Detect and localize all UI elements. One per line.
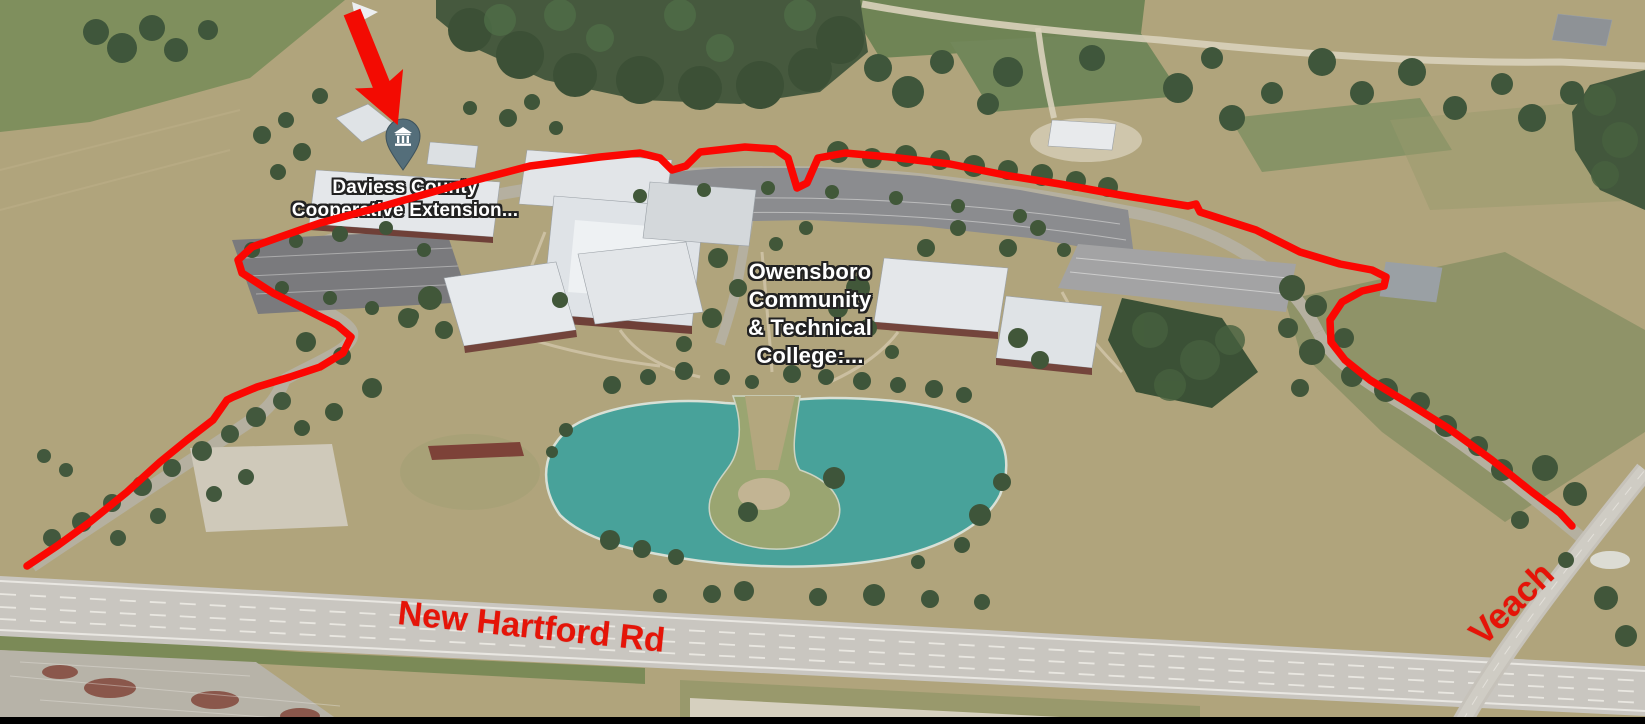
letterbox-bar	[0, 717, 1645, 724]
campus-label-line4: College:...	[748, 342, 872, 370]
barn-building	[1048, 120, 1116, 150]
campus-label-owensboro[interactable]: Owensboro Community & Technical College:…	[748, 258, 872, 370]
poi-label-line2: Cooperative Extension...	[292, 199, 519, 222]
farm-house	[1552, 14, 1612, 46]
aerial-map-view[interactable]: Daviess County Cooperative Extension... …	[0, 0, 1645, 724]
campus-label-line1: Owensboro	[748, 258, 872, 286]
campus-label-line3: & Technical	[748, 314, 872, 342]
poi-label-line1: Daviess County	[292, 176, 519, 199]
campus-label-line2: Community	[748, 286, 872, 314]
poi-label-daviess-county[interactable]: Daviess County Cooperative Extension...	[292, 176, 519, 222]
